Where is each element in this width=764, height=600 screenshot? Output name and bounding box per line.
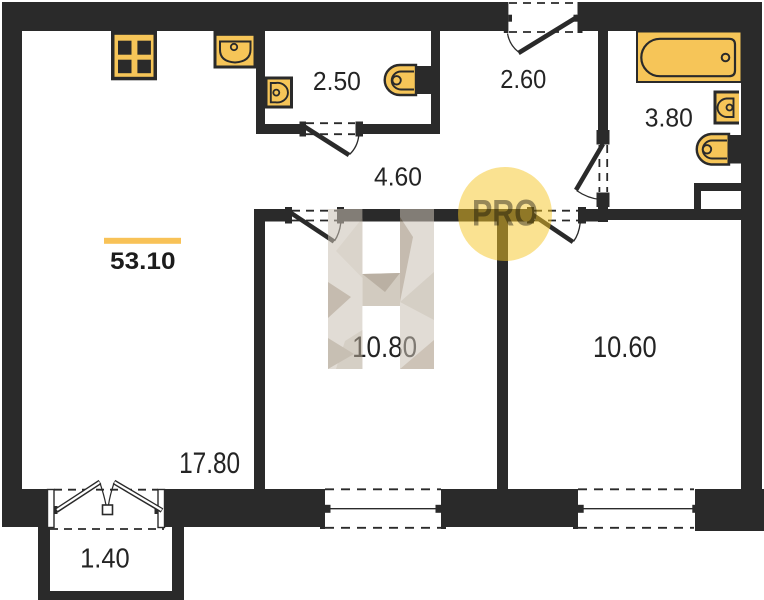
svg-text:3.80: 3.80 <box>645 105 693 133</box>
svg-text:53.10: 53.10 <box>110 248 176 275</box>
svg-text:2.60: 2.60 <box>500 66 546 94</box>
svg-text:PRO: PRO <box>472 193 538 234</box>
svg-text:2.50: 2.50 <box>313 68 361 96</box>
svg-text:10.60: 10.60 <box>593 331 657 364</box>
svg-text:4.60: 4.60 <box>374 164 422 192</box>
svg-text:1.40: 1.40 <box>80 543 130 574</box>
svg-text:17.80: 17.80 <box>179 447 240 480</box>
